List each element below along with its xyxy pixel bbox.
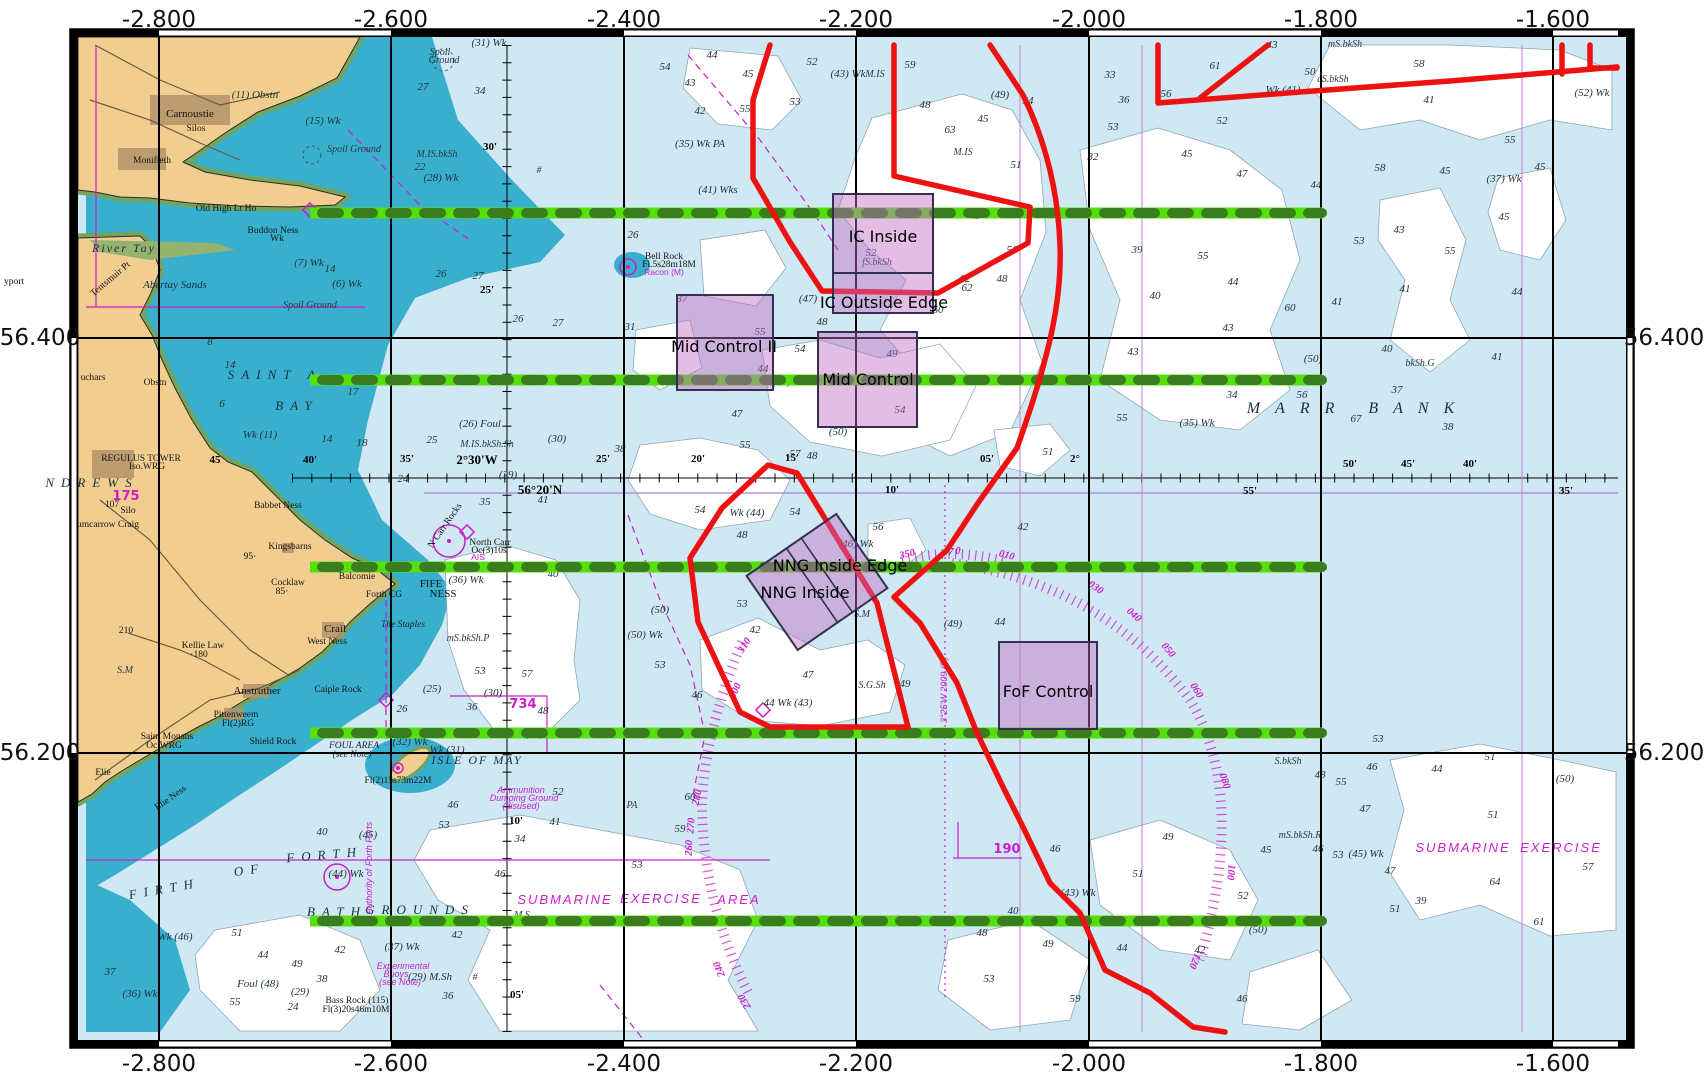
chart-label: mS.bkSh.R [1279, 830, 1322, 841]
depth-sounding: 41 [1424, 94, 1435, 106]
depth-sounding: 52 [1238, 890, 1250, 902]
chart-label: mS.bkSh [1328, 39, 1362, 50]
chart-label: Kingsbarns [268, 542, 312, 552]
chart-label: SUBMARINE [517, 892, 612, 907]
depth-sounding: 46 [1367, 761, 1379, 773]
chart-label: M.IS.bkSh [415, 149, 457, 160]
chart-label: Anstruther [233, 685, 280, 697]
chart-label: 35' [1559, 485, 1573, 497]
depth-sounding: (49) [944, 618, 963, 630]
chart-label: 40' [303, 454, 317, 466]
depth-sounding: (30) [548, 433, 567, 445]
depth-sounding: 51 [232, 927, 243, 939]
chart-label: mS.bkSh.P [447, 633, 490, 644]
depth-sounding: 39 [1415, 895, 1428, 907]
axis-tick-top: -1.600 [1516, 7, 1590, 33]
chart-label: bkSh.G [1405, 358, 1434, 369]
depth-sounding: 56 [873, 521, 885, 533]
depth-sounding: (52) Wk [1574, 87, 1610, 99]
axis-tick-top: -2.200 [819, 7, 893, 33]
depth-sounding: 51 [1390, 903, 1401, 915]
depth-sounding: 27 [473, 270, 485, 282]
chart-label: cS.bkSh [1317, 74, 1348, 85]
depth-sounding: 53 [1333, 849, 1345, 861]
depth-sounding: 52 [1217, 115, 1229, 127]
depth-sounding: 47 [1385, 865, 1397, 877]
depth-sounding: 61 [1210, 60, 1221, 72]
depth-sounding: 52 [807, 56, 819, 68]
chart-label: M.IS [952, 147, 972, 158]
chart-label: Shield Rock [250, 737, 297, 747]
chart-label: 20' [691, 453, 705, 465]
chart-label: NDREWS [44, 475, 138, 490]
area-label: FoF Control [1003, 682, 1094, 701]
chart-label: 40' [1463, 458, 1477, 470]
chart-label: SAINT A [228, 367, 322, 382]
depth-sounding: 53 [1354, 235, 1366, 247]
depth-sounding: (31) Wk [471, 37, 507, 49]
depth-sounding: 37 [1391, 384, 1404, 396]
depth-sounding: 48 [807, 450, 819, 462]
depth-sounding: (50) Wk [627, 629, 663, 641]
chart-label: uchars [81, 373, 106, 383]
depth-sounding: 26 [513, 313, 525, 325]
depth-sounding: 53 [1373, 733, 1385, 745]
axis-tick-bottom: -1.800 [1284, 1051, 1358, 1077]
depth-sounding: (15) Wk [305, 115, 341, 127]
chart-label: ·180 [190, 650, 208, 660]
depth-sounding: (44) Wk [328, 868, 364, 880]
depth-sounding: 41 [1492, 351, 1503, 363]
depth-sounding: 43 [1394, 224, 1406, 236]
chart-label: Racon (M) [644, 267, 684, 277]
axis-tick-bottom: -2.000 [1052, 1051, 1126, 1077]
depth-sounding: 57 [790, 448, 802, 460]
depth-sounding: 43 [1128, 346, 1140, 358]
chart-label: EXERCISE [1520, 840, 1602, 855]
chart-label: Abertay Sands [142, 279, 207, 291]
depth-sounding: 6 [219, 398, 225, 410]
depth-sounding: 40 [1150, 290, 1162, 302]
depth-sounding: 38 [1442, 421, 1455, 433]
depth-sounding: 46 [1050, 843, 1062, 855]
frame-bottom-white [159, 1042, 391, 1047]
depth-sounding: 17 [348, 386, 360, 398]
depth-sounding: (11) Obstn [232, 89, 279, 101]
depth-sounding: 26 [397, 703, 409, 715]
axis-tick-top: -2.000 [1052, 7, 1126, 33]
chart-label: S.bkSh [1275, 756, 1302, 767]
chart-label: 25' [480, 284, 494, 296]
depth-sounding: 36 [466, 701, 479, 713]
depth-sounding: 49 [900, 678, 912, 690]
depth-sounding: 42 [452, 929, 464, 941]
depth-sounding: 34 [1226, 389, 1239, 401]
depth-sounding: 45 [1440, 165, 1452, 177]
depth-sounding: 44 [1512, 286, 1524, 298]
depth-sounding: 40 [1008, 905, 1020, 917]
chart-label: 734 [509, 697, 536, 712]
frame-bottom-white [624, 1042, 856, 1047]
depth-sounding: (29) [291, 986, 310, 998]
depth-sounding: 14 [225, 359, 237, 371]
depth-sounding: 42 [1195, 944, 1207, 956]
depth-sounding: 50 [1305, 66, 1317, 78]
depth-sounding: Wk (11) [243, 429, 278, 441]
depth-sounding: 45 [1499, 211, 1511, 223]
area-label: NNG Inside [760, 583, 849, 602]
chart-label: 45' [1401, 458, 1415, 470]
depth-sounding: (37) Wk [384, 941, 420, 953]
depth-sounding: 63 [945, 124, 957, 136]
frame-bottom-white [1089, 1042, 1321, 1047]
chart-label: PA [626, 800, 639, 811]
depth-sounding: 47 [803, 669, 815, 681]
chart-label: Fl(2)15s73m22M [364, 775, 432, 786]
chart-label: AIS [471, 552, 485, 562]
chart-label: 95· [244, 552, 257, 562]
chart-label: M.IS.bkSh.Sh [459, 439, 514, 450]
depth-sounding: 24 [288, 1001, 300, 1013]
depth-sounding: 52 [553, 786, 565, 798]
chart-label: SUBMARINE [1415, 840, 1510, 855]
depth-sounding: 45 [1535, 161, 1547, 173]
chart-label: 190 [993, 842, 1020, 857]
depth-sounding: (35) Wk PA [675, 138, 725, 150]
depth-sounding: 33 [1104, 69, 1117, 81]
depth-sounding: 41 [550, 816, 561, 828]
depth-sounding: 43 [1223, 322, 1235, 334]
depth-sounding: 67 [1351, 413, 1363, 425]
depth-sounding: 45 [743, 68, 755, 80]
depth-sounding: Wk (44) [729, 507, 764, 519]
chart-canvas: River TaySAINT ABAYMARR BANKFIRTHOFFORTH… [0, 0, 1708, 1088]
depth-sounding: 34 [514, 833, 527, 845]
axis-tick-left: 56.200 [0, 740, 80, 766]
depth-sounding: 59 [1070, 993, 1082, 1005]
depth-sounding: (7) Wk [294, 257, 325, 269]
depth-sounding: 44 [258, 949, 270, 961]
depth-sounding: 49 [1043, 938, 1055, 950]
chart-label: EXERCISE [620, 891, 702, 906]
chart-label: 05' [980, 453, 994, 465]
frame-left-white [72, 338, 77, 753]
chart-label: Obstn [144, 378, 167, 388]
depth-sounding: 57 [1583, 861, 1595, 873]
chart-label: Carnoustie [166, 108, 214, 120]
chart-label: 50' [1343, 458, 1357, 470]
depth-sounding: 36 [442, 990, 455, 1002]
depth-sounding: 56 [1297, 389, 1309, 401]
light-dot-icon [626, 265, 630, 269]
depth-sounding: 51 [1133, 868, 1144, 880]
depth-sounding: 47 [1360, 803, 1372, 815]
depth-sounding: 51 [1011, 159, 1022, 171]
depth-sounding: 49 [1163, 831, 1175, 843]
depth-sounding: 53 [439, 819, 451, 831]
depth-sounding: (50) [1556, 773, 1575, 785]
depth-sounding: 58 [1414, 58, 1426, 70]
axis-tick-top: -1.800 [1284, 7, 1358, 33]
depth-sounding: (41) Wks [698, 184, 737, 196]
depth-sounding: 46 [1237, 993, 1249, 1005]
depth-sounding: 53 [737, 598, 749, 610]
depth-sounding: (36) Wk [122, 988, 158, 1000]
depth-sounding: Wk (31) [429, 744, 464, 756]
depth-sounding: 53 [790, 96, 802, 108]
depth-sounding: 45 [1182, 148, 1194, 160]
depth-sounding: 40 [1382, 343, 1394, 355]
depth-sounding: 24 [398, 473, 410, 485]
depth-sounding: 31 [624, 321, 636, 333]
depth-sounding: 47 [1237, 168, 1249, 180]
depth-sounding: 48 [997, 273, 1009, 285]
depth-sounding: (43) Wk [830, 68, 866, 80]
depth-sounding: 34 [474, 85, 487, 97]
depth-sounding: 37 [104, 966, 117, 978]
depth-sounding: (35) Wk [1179, 417, 1215, 429]
depth-sounding: 60 [685, 791, 697, 803]
depth-sounding: 26 [628, 229, 640, 241]
light-dot-icon [396, 766, 400, 770]
depth-sounding: 53 [1108, 121, 1120, 133]
depth-sounding: 27 [553, 317, 565, 329]
depth-sounding: 55 [1505, 134, 1517, 146]
depth-sounding: 18 [357, 437, 369, 449]
depth-sounding: 48 [538, 705, 550, 717]
axis-tick-bottom: -2.800 [122, 1051, 196, 1077]
chart-label: BAY [275, 398, 318, 413]
depth-sounding: Wk (46) [157, 931, 192, 943]
depth-sounding: 45 [978, 113, 990, 125]
depth-sounding: 42 [1018, 521, 1030, 533]
depth-sounding: 48 [920, 99, 932, 111]
chart-label: M.IS [864, 69, 884, 80]
depth-sounding: 55 [740, 439, 752, 451]
chart-label: 30' [483, 141, 497, 153]
depth-sounding: 46 [1313, 843, 1325, 855]
depth-sounding: (29) [499, 469, 518, 481]
depth-sounding: (50) [651, 604, 670, 616]
chart-label: S.M [117, 665, 134, 676]
depth-sounding: 39 [1131, 244, 1144, 256]
depth-sounding: 14 [322, 433, 334, 445]
depth-sounding: 47 [732, 408, 744, 420]
depth-sounding: 26 [436, 268, 448, 280]
depth-sounding: 55 [230, 996, 242, 1008]
depth-sounding: 44 [1432, 763, 1444, 775]
compass-degree: 260 [684, 839, 696, 857]
chart-label: S.G.Sh [858, 680, 885, 691]
depth-sounding: (45) [359, 829, 378, 841]
depth-sounding: 35 [479, 496, 492, 508]
depth-sounding: (29) M.Sh [408, 971, 452, 983]
depth-sounding: 55 [1117, 412, 1129, 424]
axis-tick-top: -2.400 [587, 7, 661, 33]
frame-right-white [1628, 338, 1633, 753]
axis-tick-right: 56.200 [1624, 740, 1704, 766]
depth-sounding: 55 [740, 103, 752, 115]
depth-sounding: 58 [1375, 162, 1387, 174]
depth-sounding: (50) [1304, 353, 1323, 365]
depth-sounding: (37) Wk [1486, 173, 1522, 185]
compass-degree: 100 [1224, 864, 1236, 881]
depth-sounding: 25 [427, 434, 439, 446]
depth-sounding: (49) [991, 89, 1010, 101]
chart-label: 25' [596, 453, 610, 465]
depth-sounding: 42 [695, 105, 707, 117]
depth-sounding: 48 [737, 529, 749, 541]
depth-sounding: 36 [1118, 94, 1131, 106]
chart-label: West Ness [307, 637, 347, 647]
chart-label: (see Note) [333, 749, 372, 760]
depth-sounding: 54 [660, 61, 672, 73]
depth-sounding: 43 [685, 77, 697, 89]
chart-label: Wk [270, 234, 284, 244]
depth-sounding: 55 [1445, 245, 1457, 257]
area-label: Mid Control [822, 370, 913, 389]
chart-label: 05' [510, 989, 524, 1001]
depth-sounding: 44 [995, 616, 1007, 628]
depth-sounding: (47) [799, 293, 818, 305]
depth-sounding: 44 [1117, 942, 1129, 954]
depth-sounding: 54 [695, 504, 707, 516]
depth-sounding: 57 [522, 668, 534, 680]
depth-sounding: 53 [655, 659, 667, 671]
depth-sounding: 44 Wk (43) [764, 697, 813, 709]
depth-sounding: 38 [316, 973, 329, 985]
chart-label: 10' [885, 484, 899, 496]
chart-label: 10' [509, 815, 523, 827]
depth-sounding: Foul (48) [236, 978, 279, 990]
depth-sounding: 46 [692, 689, 704, 701]
depth-sounding: 51 [1043, 446, 1054, 458]
depth-sounding: 41 [538, 494, 549, 506]
depth-sounding: 61 [1534, 916, 1545, 928]
chart-label: 175 [112, 489, 139, 504]
axis-tick-bottom: -2.200 [819, 1051, 893, 1077]
depth-sounding: 48 [977, 927, 989, 939]
chart-label: Spoil Ground [327, 144, 382, 155]
axis-tick-bottom: -2.400 [587, 1051, 661, 1077]
depth-sounding: 54 [790, 506, 802, 518]
depth-sounding: 49 [292, 958, 304, 970]
depth-sounding: (28) Wk [423, 172, 459, 184]
chart-label: (disused) [502, 801, 539, 811]
chart-label: 2° [1070, 453, 1080, 465]
chart-label: Spoil Ground [283, 300, 338, 311]
area-label: IC Outside Edge [820, 293, 948, 312]
chart-label: Forth CG [366, 590, 402, 600]
light-dot-icon [447, 539, 451, 543]
depth-sounding: 44 [707, 49, 719, 61]
chart-label: Babbet Ness [254, 501, 302, 511]
depth-sounding: 55 [1198, 250, 1210, 262]
depth-sounding: 45 [1261, 844, 1273, 856]
chart-label: Elie [95, 768, 110, 778]
chart-label: 35' [400, 453, 414, 465]
axis-tick-right: 56.400 [1624, 325, 1704, 351]
depth-sounding: 53 [632, 859, 644, 871]
depth-sounding: 41 [1332, 296, 1343, 308]
chart-label: Fl(3)20s46m10M [322, 1004, 390, 1015]
depth-sounding: 14 [325, 263, 337, 275]
depth-sounding: 51 [1488, 809, 1499, 821]
axis-tick-top: -2.600 [354, 7, 428, 33]
depth-sounding: 40 [317, 826, 329, 838]
depth-sounding: 46 [448, 799, 460, 811]
axis-tick-bottom: -2.600 [354, 1051, 428, 1077]
area-label: NNG Inside Edge [773, 556, 907, 575]
chart-label: yport [4, 277, 24, 287]
depth-sounding: 48 [817, 316, 829, 328]
axis-tick-bottom: -1.600 [1516, 1051, 1590, 1077]
chart-label: Crail [324, 623, 346, 635]
depth-sounding: 64 [1490, 876, 1502, 888]
chart-label: NESS [430, 588, 457, 600]
depth-sounding: 55 [1336, 776, 1348, 788]
chart-label: Monifieth [133, 155, 171, 166]
chart-label: Oc.WRG [146, 741, 182, 751]
chart-label: Fl(2)RG [222, 718, 254, 729]
frame-bottom-white [1553, 1042, 1618, 1047]
depth-sounding: 54 [795, 343, 807, 355]
chart-label: 210 [119, 626, 134, 636]
depth-sounding: 42 [750, 624, 762, 636]
depth-sounding: (26) Foul [459, 418, 501, 430]
axis-tick-top: -2.800 [122, 7, 196, 33]
depth-sounding: 27 [418, 81, 430, 93]
depth-sounding: 41 [1400, 283, 1411, 295]
chart-label: River Tay [91, 241, 156, 255]
depth-sounding: (25) [423, 683, 442, 695]
chart-label: Caiple Rock [314, 685, 361, 695]
depth-sounding: 53 [475, 665, 487, 677]
chart-label: Old High Lt Ho [196, 204, 257, 214]
compass-degree: 0 [955, 546, 961, 557]
depth-sounding: 56 [1161, 88, 1173, 100]
depth-sounding: (36) Wk [448, 574, 484, 586]
chart-label: Silo [120, 506, 136, 516]
chart-label: 45 [210, 454, 222, 466]
nautical-chart-figure: -2.800-2.600-2.400-2.200-2.000-1.800-1.6… [0, 0, 1708, 1088]
depth-sounding: 60 [1285, 302, 1297, 314]
chart-label: The Staples [381, 620, 425, 630]
depth-sounding: (30) [484, 687, 503, 699]
chart-label: Ground [429, 55, 461, 66]
chart-label: 55' [1243, 485, 1257, 497]
area-label: IC Inside [849, 227, 918, 246]
chart-label: 2°30'W [456, 452, 497, 467]
chart-label: Balcomie [339, 572, 375, 582]
depth-sounding: 59 [675, 823, 687, 835]
chart-label: 85· [276, 587, 289, 597]
chart-label: Silos [186, 124, 205, 134]
depth-sounding: (6) Wk [332, 278, 363, 290]
depth-sounding: 46 [495, 868, 507, 880]
depth-sounding: 53 [984, 973, 996, 985]
depth-sounding: (45) Wk [1348, 848, 1384, 860]
chart-label: GROUNDS [365, 902, 475, 917]
chart-label: AREA [716, 892, 760, 907]
depth-sounding: 59 [905, 59, 917, 71]
chart-label: umcarrow Craig [77, 520, 139, 530]
depth-sounding: 44 [1228, 276, 1240, 288]
depth-sounding: 42 [335, 944, 347, 956]
compass-degree: 270 [685, 817, 697, 835]
axis-tick-left: 56.400 [0, 325, 80, 351]
area-label: Mid Control II [671, 337, 777, 356]
